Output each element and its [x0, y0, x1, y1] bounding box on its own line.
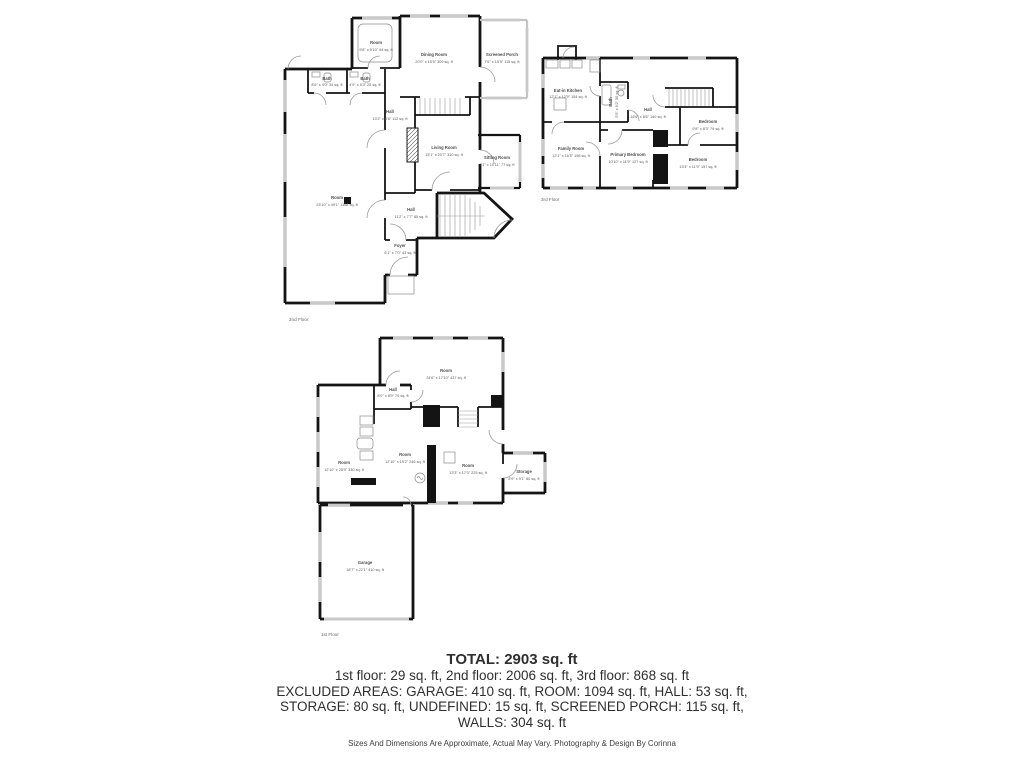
room-dims: 13'2" x 8'6" 112 sq. ft: [372, 117, 408, 121]
area-summary: TOTAL: 2903 sq. ft 1st floor: 29 sq. ft,…: [0, 651, 1024, 748]
wall-block: [491, 395, 503, 407]
room-dims: 7'1" x 10'11" 77 sq. ft: [479, 163, 515, 167]
excluded-areas-line: EXCLUDED AREAS: GARAGE: 410 sq. ft, ROOM…: [0, 684, 1024, 700]
room-dims: 6'1" x 7'0" 43 sq. ft: [384, 251, 416, 255]
stairs-1st: [458, 411, 478, 427]
room-label: Room: [440, 368, 452, 373]
room-label: Bedroom: [689, 157, 708, 162]
room-labels-3rd: Eat-in Kitchen 12'1" x 12'9" 154 sq. ft …: [549, 85, 724, 169]
wall-block: [351, 478, 376, 485]
room-label: Bath: [322, 76, 332, 81]
room-dims: 12'1" x 12'9" 154 sq. ft: [549, 95, 587, 99]
room-label: Primary Bedroom: [610, 152, 645, 157]
room-label: Foyer: [394, 243, 406, 248]
room-dims: 18'7" x 22'1" 410 sq. ft: [346, 568, 384, 572]
room-dims: 7'6" x 15'5" 115 sq. ft: [484, 60, 520, 64]
room-dims: 4'9" x 5'3" 25 sq. ft: [349, 83, 381, 87]
floor-caption-3rd: 3rd Floor: [541, 197, 560, 202]
chimney-hatch: [407, 128, 418, 162]
room-label: Sitting Room: [484, 155, 510, 160]
room-label: Garage: [358, 560, 373, 565]
room-label: Hall: [386, 109, 394, 114]
room-label: Screened Porch: [486, 52, 518, 57]
fixtures-1st: [357, 416, 455, 483]
room-dims: 8'0" x 8'9" 70 sq. ft: [377, 394, 409, 398]
floor-plan-1st-floor: Room 24'6" x 17'10" 437 sq. ft Hall 8'0"…: [308, 332, 553, 642]
room-dims: 20'0" x 15'5" 309 sq. ft: [415, 60, 453, 64]
room-dims: 23'10" x 49'1" 1168 sq. ft: [316, 203, 358, 207]
room-dims: 12'1" x 16'5" 198 sq. ft: [552, 154, 590, 158]
door-arcs-1st: [386, 371, 517, 505]
room-label: Storage: [516, 469, 532, 474]
closet-block: [653, 130, 668, 147]
room-label: Room: [399, 452, 411, 457]
room-dims: 8'9" x 9'1" 80 sq. ft: [508, 477, 540, 481]
floor-plan-2nd-floor: Room 9'8" x 9'10" 94 sq. ft Dining Room …: [280, 12, 530, 327]
door-arcs-3rd: [552, 47, 700, 156]
room-dims: 9'8" x 9'10" 94 sq. ft: [359, 48, 393, 52]
room-label: Eat-in Kitchen: [554, 88, 583, 93]
room-dims: 10'10" x 11'9" 127 sq. ft: [608, 160, 648, 164]
stairs-3rd: [669, 89, 709, 106]
fixtures-3rd: [546, 60, 625, 110]
room-label: Hall: [389, 387, 397, 392]
room-label: Family Room: [558, 146, 585, 151]
room-label: Hall: [407, 207, 415, 212]
wall-block: [427, 445, 436, 503]
walls-interior-1st: [351, 385, 503, 503]
room-label: Room: [331, 195, 343, 200]
entry-stoop: [388, 276, 414, 294]
room-dims: 12'10" x 25'9" 330 sq. ft: [324, 468, 365, 472]
room-label: Room: [338, 460, 350, 465]
floor-caption-2nd: 2nd Floor: [289, 317, 309, 322]
room-dims: 16'6" x 8'6" 140 sq. ft: [630, 115, 666, 119]
room-label: Hall: [644, 107, 652, 112]
room-label: Room: [462, 463, 474, 468]
room-dims: 8'6" x 4'0" 34 sq. ft: [311, 83, 343, 87]
equipment-square: [444, 452, 455, 463]
room-dims: 12'10" x 19'2" 246 sq. ft: [385, 460, 426, 464]
disclaimer-credit: Sizes And Dimensions Are Approximate, Ac…: [0, 739, 1024, 748]
room-label: Room: [370, 40, 382, 45]
excluded-areas-line: WALLS: 304 sq. ft: [0, 715, 1024, 731]
room-label: Bath: [608, 97, 613, 107]
room-label: Bath: [360, 76, 370, 81]
wall-block: [423, 405, 440, 427]
excluded-areas-line: STORAGE: 80 sq. ft, UNDEFINED: 15 sq. ft…: [0, 699, 1024, 715]
floor-plan-sheet: Room 9'8" x 9'10" 94 sq. ft Dining Room …: [0, 0, 1024, 768]
room-dims: 9'8" x 8'3" 79 sq. ft: [692, 127, 724, 131]
floor-areas-line: 1st floor: 29 sq. ft, 2nd floor: 2006 sq…: [0, 668, 1024, 684]
floor-plan-3rd-floor: Eat-in Kitchen 12'1" x 12'9" 154 sq. ft …: [538, 44, 743, 209]
room-dims: 15'1" x 20'7" 310 sq. ft: [425, 153, 463, 157]
room-dims: 11'2" x 7'7" 85 sq. ft: [395, 215, 429, 219]
room-label: Living Room: [431, 145, 457, 150]
room-label: Dining Room: [421, 52, 447, 57]
total-area: TOTAL: 2903 sq. ft: [0, 651, 1024, 668]
stairs-2nd: [420, 98, 485, 236]
room-dims: 5'5" x 9'2" 50 sq. ft: [615, 85, 619, 117]
room-dims: 13'3" x 17'0" 225 sq. ft: [449, 471, 487, 475]
floor-caption-1st: 1st Floor: [321, 632, 339, 637]
closet-block: [653, 154, 668, 184]
room-dims: 24'6" x 17'10" 437 sq. ft: [426, 376, 467, 380]
room-label: Bedroom: [699, 119, 718, 124]
room-dims: 13'4" x 11'9" 157 sq. ft: [679, 165, 717, 169]
